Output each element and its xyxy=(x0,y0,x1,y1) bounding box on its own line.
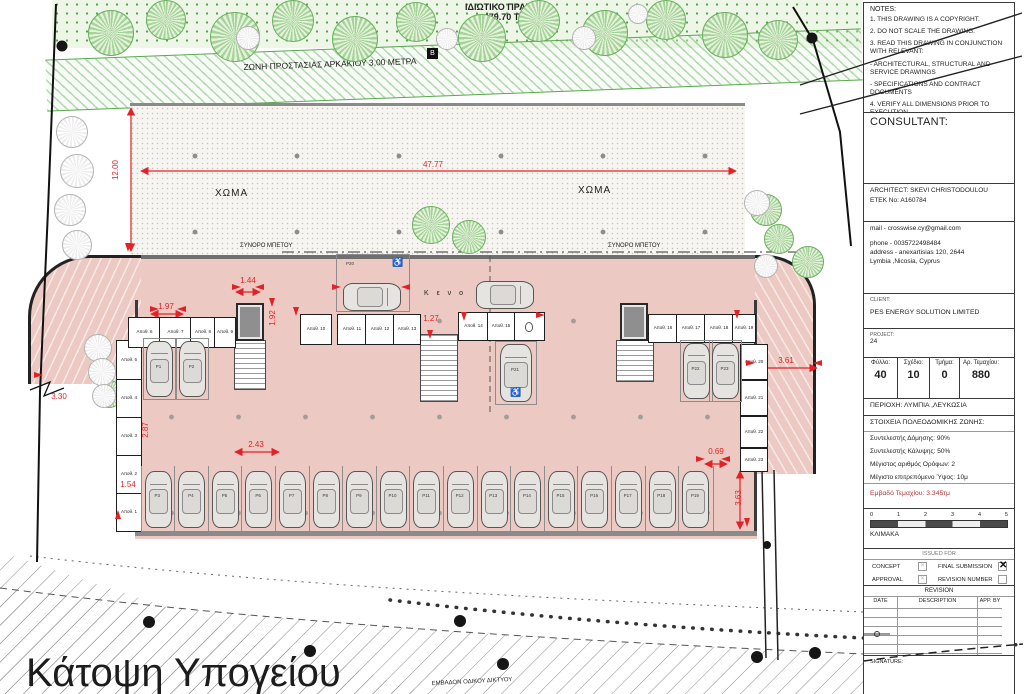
scale-tick: 4 xyxy=(978,512,981,518)
revision-column-header: DESCRIPTION xyxy=(898,597,978,609)
issued-for-label: CONCEPT xyxy=(872,564,918,570)
parking-label: P8 xyxy=(309,494,343,499)
car-icon xyxy=(279,471,306,528)
parking-label: P16 xyxy=(577,494,611,499)
sheet-table-header: Τμήμα: xyxy=(930,360,959,366)
checkbox-icon: ✕ xyxy=(918,575,927,584)
tree-icon xyxy=(54,194,86,226)
architect-section: ARCHITECT: SKEVI CHRISTODOULOU ETEK No: … xyxy=(864,184,1014,222)
dim-elev-front: 1.44 xyxy=(233,277,263,285)
note-item: 1. THIS DRAWING IS A COPYRIGHT. xyxy=(870,16,1008,24)
plot-area-value: Εμβαδό Τεμαχίου: 3.345τμ xyxy=(870,490,1008,497)
issued-for-label: FINAL SUBMISSION xyxy=(932,564,998,570)
storage-room: Αποθ. 21 xyxy=(740,380,768,416)
revision-cell xyxy=(978,627,1002,636)
storage-room: Αποθ. 9 xyxy=(214,317,236,348)
dim-store-front: 1.97 xyxy=(151,303,181,311)
storage-room: Αποθ. 10 xyxy=(300,314,332,345)
parking-label: P7 xyxy=(275,494,309,499)
floor-plan-sheet: ΙΔΙΩΤΙΚΟ ΠΡΑΣΙΝΟ 479.70 Τ.Μ ΖΩΝΗ ΠΡΟΣΤΑΣ… xyxy=(0,0,1024,694)
storage-room: Αποθ. 4 xyxy=(116,378,142,418)
scale-section: 012345 ΚΛΙΜΑΚΑ xyxy=(864,509,1014,549)
storage-room: Αποθ. 18 xyxy=(704,314,734,343)
void-label: Κ ε ν ο xyxy=(424,290,466,298)
car-icon xyxy=(212,471,239,528)
car-icon xyxy=(380,471,407,528)
contact-phone: phone - 0035722498484 xyxy=(870,240,1008,247)
dim-site-depth: 12.00 xyxy=(112,154,120,186)
parking-label: P12 xyxy=(443,494,477,499)
revision-cell xyxy=(898,627,978,636)
revision-cell xyxy=(864,609,898,618)
car-icon xyxy=(145,471,172,528)
red-arrow xyxy=(746,360,758,366)
dim-ramp-depth: 3.63 xyxy=(735,483,743,513)
architect-etek: ETEK No: A160784 xyxy=(870,197,1008,204)
dim-left-depth: 2.87 xyxy=(142,415,150,445)
scale-label: ΚΛΙΜΑΚΑ xyxy=(870,531,1008,538)
plot-area-section: Εμβαδό Τεμαχίου: 3.345τμ xyxy=(864,483,1014,509)
car-icon xyxy=(346,471,373,528)
parking-label: P22 xyxy=(680,367,711,372)
revision-cell xyxy=(864,627,898,636)
sheet-table-header: Φύλλο: xyxy=(864,360,897,366)
dim-small-left: 1.54 xyxy=(114,481,142,489)
scale-tick: 1 xyxy=(897,512,900,518)
parking-label: P20 xyxy=(340,262,360,267)
red-arrow xyxy=(332,284,344,290)
car-icon xyxy=(581,471,608,528)
parking-label: P6 xyxy=(241,494,275,499)
tree-icon xyxy=(754,254,778,278)
parking-label: P19 xyxy=(678,494,712,499)
red-arrow xyxy=(398,284,410,290)
sheet-table-value: 0 xyxy=(930,369,959,381)
note-item: - SPECIFICATIONS AND CONTRACT DOCUMENTS xyxy=(870,81,1008,97)
car-icon xyxy=(476,281,534,309)
note-item: - ARCHITECTURAL, STRUCTURAL AND SERVICE … xyxy=(870,61,1008,77)
zoning-item: Συντελεστής Κάλυψης: 50% xyxy=(870,448,1008,456)
red-arrow xyxy=(115,507,121,519)
tree-icon xyxy=(56,116,88,148)
zoning-heading-section: ΣΤΟΙΧΕΙΑ ΠΟΛΕΟΔΟΜΙΚΗΣ ΖΩΝΗΣ: xyxy=(864,416,1014,432)
revision-table: DATEDESCRIPTIONAPP. BY xyxy=(864,597,1014,656)
red-arrow xyxy=(461,312,467,324)
revision-column-header: DATE xyxy=(864,597,898,609)
tree-icon xyxy=(764,224,794,254)
tree-icon xyxy=(758,20,798,60)
parking-label: P15 xyxy=(544,494,578,499)
revision-cell xyxy=(898,645,978,654)
car-icon xyxy=(413,471,440,528)
storage-room: Αποθ. 17 xyxy=(676,314,706,343)
section-marker-b: B xyxy=(427,48,438,59)
tree-icon xyxy=(452,220,486,254)
red-arrow xyxy=(293,307,299,319)
zoning-items-section: Συντελεστής Δόμησης: 90%Συντελεστής Κάλυ… xyxy=(864,432,1014,483)
dim-stall-width: 2.43 xyxy=(241,441,271,449)
tree-icon xyxy=(646,0,686,40)
contact-address2: Lymbia ,Nicosia, Cyprus xyxy=(870,258,1008,265)
contact-section: mail - crosswise.cy@gmail.com phone - 00… xyxy=(864,222,1014,294)
note-item: 3. READ THIS DRAWING IN CONJUNCTION WITH… xyxy=(870,40,1008,56)
issued-for-label: REVISION NUMBER xyxy=(932,577,998,583)
red-arrow xyxy=(744,518,750,530)
parking-label: P10 xyxy=(376,494,410,499)
revision-cell xyxy=(864,618,898,627)
project-section: PROJECT: 24 xyxy=(864,329,1014,358)
parking-label: P1 xyxy=(143,365,174,370)
elevator-shaft-right xyxy=(620,303,648,341)
tree-icon xyxy=(92,384,116,408)
storage-room: Αποθ. 13 xyxy=(393,314,421,345)
revision-cell xyxy=(978,618,1002,627)
notes-heading: NOTES: xyxy=(870,6,1008,13)
parking-label: P5 xyxy=(208,494,242,499)
dim-corridor: 0.69 xyxy=(701,448,731,456)
revision-cell xyxy=(864,645,898,654)
red-arrow xyxy=(734,310,740,322)
sheet-table-value: 10 xyxy=(898,369,929,381)
sheet-table-cell: Τμήμα:0 xyxy=(930,358,960,398)
tree-icon xyxy=(412,206,450,244)
parking-label: P9 xyxy=(342,494,376,499)
client-name: PES ENERGY SOLUTION LIMITED xyxy=(870,309,1008,316)
sheet-title: Κάτοψη Υπογείου xyxy=(26,650,341,694)
revision-cell xyxy=(898,609,978,618)
revision-cell xyxy=(864,636,898,645)
storage-room: Αποθ. 22 xyxy=(740,416,768,448)
region-label: ΠΕΡΙΟΧΗ: ΛΥΜΠΙΑ ,ΛΕΥΚΩΣΙΑ xyxy=(870,402,1008,409)
scale-tick: 2 xyxy=(924,512,927,518)
car-icon xyxy=(615,471,642,528)
tree-icon xyxy=(236,26,260,50)
parking-label: P18 xyxy=(645,494,679,499)
revision-section: REVISION DATEDESCRIPTIONAPP. BY xyxy=(864,586,1014,656)
scale-tick: 5 xyxy=(1005,512,1008,518)
architect-name: ARCHITECT: SKEVI CHRISTODOULOU xyxy=(870,187,1008,194)
issued-for-row: APPROVAL✕REVISION NUMBER xyxy=(864,573,1014,586)
issued-for-row: CONCEPT✕FINAL SUBMISSION✕ xyxy=(864,560,1014,573)
project-number: 24 xyxy=(870,338,1008,345)
car-icon xyxy=(514,471,541,528)
red-arrow xyxy=(125,243,131,255)
sheet-table-cell: Φύλλο:40 xyxy=(864,358,898,398)
tree-icon xyxy=(60,154,94,188)
revision-cell xyxy=(978,645,1002,654)
wheelchair-icon: ♿ xyxy=(392,258,403,267)
revision-column-header: APP. BY xyxy=(978,597,1002,609)
scale-bar xyxy=(870,520,1008,528)
parking-label: P23 xyxy=(709,367,740,372)
car-icon xyxy=(481,471,508,528)
consultant-label: CONSULTANT: xyxy=(870,116,1008,128)
sheet-table-cell: Αρ. Τεμαχίου:880 xyxy=(960,358,1002,398)
sheet-table-cell: Σχέδιο:10 xyxy=(898,358,930,398)
tree-icon xyxy=(272,0,314,42)
zoning-item: Μέγιστος αριθμός Ορόφων: 2 xyxy=(870,461,1008,469)
storage-room: Αποθ. 3 xyxy=(116,416,142,456)
revision-heading: REVISION xyxy=(864,586,1014,597)
dim-road-offset: 3.30 xyxy=(44,393,74,401)
issued-for-label: APPROVAL xyxy=(872,577,918,583)
red-arrow xyxy=(718,456,730,462)
dim-site-width: 47.77 xyxy=(408,161,458,169)
title-block: NOTES: 1. THIS DRAWING IS A COPYRIGHT.2.… xyxy=(863,2,1015,694)
tree-icon xyxy=(518,0,560,42)
revision-cell xyxy=(898,636,978,645)
parking-label: P3 xyxy=(141,494,175,499)
sheet-table-section: Φύλλο:40Σχέδιο:10Τμήμα:0Αρ. Τεμαχίου:880 xyxy=(864,358,1014,399)
tree-icon xyxy=(436,28,458,50)
revision-cell xyxy=(898,618,978,627)
zoning-list: Συντελεστής Δόμησης: 90%Συντελεστής Κάλυ… xyxy=(870,435,1008,483)
tree-icon xyxy=(88,358,116,386)
parking-label: P21 xyxy=(495,368,535,373)
parking-label: P13 xyxy=(477,494,511,499)
elevator-shaft-left xyxy=(236,303,264,341)
tree-icon xyxy=(396,2,436,42)
storage-room: Αποθ. 16 xyxy=(648,314,678,343)
car-icon xyxy=(245,471,272,528)
parking-label: P2 xyxy=(176,365,207,370)
sheet-table-value: 880 xyxy=(960,369,1002,381)
issued-for-section: ISSUED FOR CONCEPT✕FINAL SUBMISSION✕APPR… xyxy=(864,549,1014,586)
parking-label: P11 xyxy=(409,494,443,499)
checkbox-icon: ✕ xyxy=(918,562,927,571)
sheet-table: Φύλλο:40Σχέδιο:10Τμήμα:0Αρ. Τεμαχίου:880 xyxy=(864,358,1014,398)
contact-address1: address - anexartisias 120, 2644 xyxy=(870,249,1008,256)
sheet-table-header: Σχέδιο: xyxy=(898,360,929,366)
sheet-table-header: Αρ. Τεμαχίου: xyxy=(960,360,1002,366)
tree-icon xyxy=(88,10,134,56)
revision-cell xyxy=(978,609,1002,618)
tree-icon xyxy=(62,230,92,260)
client-label: CLIENT: xyxy=(870,297,1008,303)
concrete-boundary-right-label: ΣΥΝΟΡΟ ΜΠΕΤΟΥ xyxy=(608,243,660,250)
parking-label: P4 xyxy=(174,494,208,499)
signature-section: SIGNATURE: xyxy=(864,656,1014,694)
tree-icon xyxy=(572,26,596,50)
dim-ramp-width: 3.61 xyxy=(769,357,803,365)
car-icon xyxy=(548,471,575,528)
parking-label: P14 xyxy=(510,494,544,499)
storage-room: Αποθ. 23 xyxy=(740,448,768,472)
wheelchair-icon: ♿ xyxy=(510,388,521,397)
tree-icon xyxy=(702,12,748,58)
tree-icon xyxy=(332,16,378,62)
notes-section: NOTES: 1. THIS DRAWING IS A COPYRIGHT.2.… xyxy=(864,3,1014,113)
checkbox-icon xyxy=(998,575,1007,584)
red-arrow xyxy=(427,330,433,342)
storage-room: Αποθ. 12 xyxy=(365,314,395,345)
client-section: CLIENT: PES ENERGY SOLUTION LIMITED xyxy=(864,294,1014,329)
revision-cell xyxy=(978,636,1002,645)
tree-icon xyxy=(146,0,186,40)
contact-mail: mail - crosswise.cy@gmail.com xyxy=(870,225,1008,232)
car-icon xyxy=(649,471,676,528)
dim-stair-width: 1.27 xyxy=(418,315,444,323)
zoning-heading: ΣΤΟΙΧΕΙΑ ΠΟΛΕΟΔΟΜΙΚΗΣ ΖΩΝΗΣ: xyxy=(870,419,1008,426)
sheet-table-value: 40 xyxy=(864,369,897,381)
zoning-item: Συντελεστής Δόμησης: 90% xyxy=(870,435,1008,443)
consultant-section: CONSULTANT: xyxy=(864,113,1014,184)
car-icon xyxy=(682,471,709,528)
checkbox-icon: ✕ xyxy=(998,562,1007,571)
tree-icon xyxy=(458,14,506,62)
issued-for-rows: CONCEPT✕FINAL SUBMISSION✕APPROVAL✕REVISI… xyxy=(864,560,1014,586)
scale-tick: 3 xyxy=(951,512,954,518)
red-arrow xyxy=(810,360,822,366)
notes-list: 1. THIS DRAWING IS A COPYRIGHT.2. DO NOT… xyxy=(870,16,1008,113)
issued-for-heading: ISSUED FOR xyxy=(864,549,1014,560)
car-icon xyxy=(313,471,340,528)
tree-icon xyxy=(792,246,824,278)
storage-room: Αποθ. 15 xyxy=(487,312,515,341)
dim-elev-side: 1.92 xyxy=(269,303,277,333)
note-item: 2. DO NOT SCALE THE DRAWING. xyxy=(870,28,1008,36)
signature-label: SIGNATURE: xyxy=(870,659,1008,665)
red-arrow xyxy=(34,372,46,378)
red-arrow xyxy=(536,312,548,318)
car-icon xyxy=(178,471,205,528)
storage-room: Αποθ. 11 xyxy=(337,314,367,345)
zoning-item: Μέγιστο επιτρεπόμενο Ύψος: 10μ xyxy=(870,474,1008,482)
tree-icon xyxy=(744,190,770,216)
parking-label: P17 xyxy=(611,494,645,499)
red-arrow xyxy=(696,456,708,462)
region-section: ΠΕΡΙΟΧΗ: ΛΥΜΠΙΑ ,ΛΕΥΚΩΣΙΑ xyxy=(864,399,1014,416)
scale-numbers: 012345 xyxy=(870,512,1008,518)
tree-icon xyxy=(628,4,648,24)
car-icon xyxy=(343,283,401,311)
concrete-boundary-left-label: ΣΥΝΟΡΟ ΜΠΕΤΟΥ xyxy=(240,243,292,250)
scale-tick: 0 xyxy=(870,512,873,518)
car-icon xyxy=(447,471,474,528)
note-item: 4. VERIFY ALL DIMENSIONS PRIOR TO EXECUT… xyxy=(870,101,1008,113)
